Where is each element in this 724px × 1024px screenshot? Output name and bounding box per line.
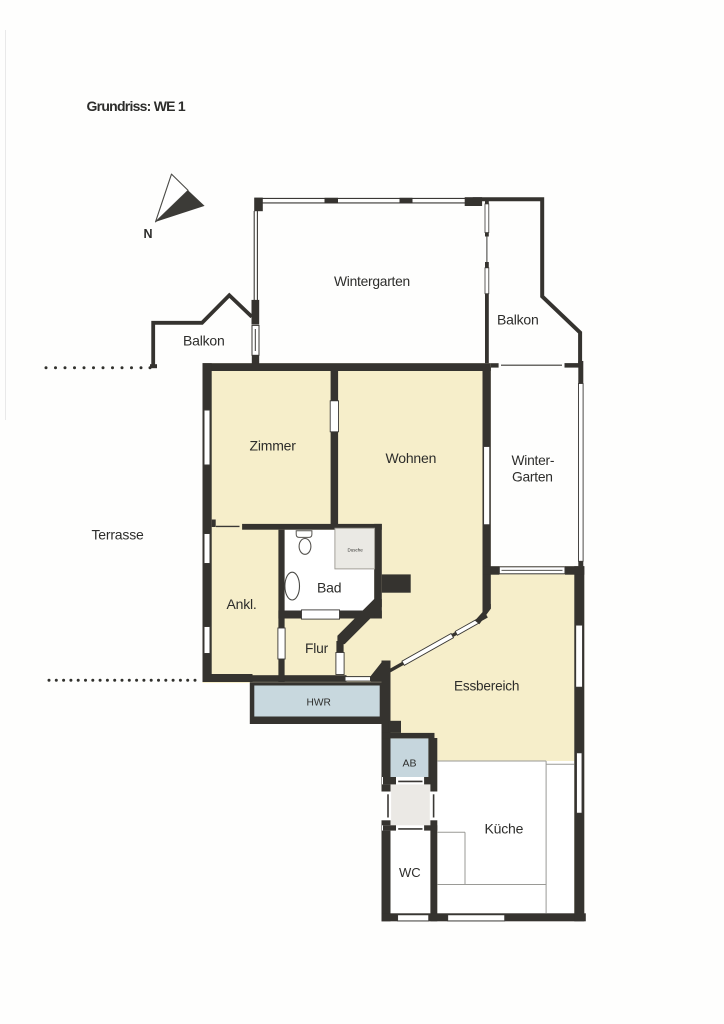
svg-text:Bad: Bad bbox=[317, 580, 341, 596]
svg-text:Grundriss: WE 1: Grundriss: WE 1 bbox=[87, 98, 186, 114]
svg-text:Flur: Flur bbox=[305, 641, 329, 656]
svg-text:Garten: Garten bbox=[512, 469, 553, 484]
svg-text:Ankl.: Ankl. bbox=[227, 596, 257, 612]
svg-text:Küche: Küche bbox=[485, 821, 524, 837]
svg-text:AB: AB bbox=[403, 757, 417, 769]
svg-text:Wintergarten: Wintergarten bbox=[334, 274, 410, 289]
svg-text:N: N bbox=[144, 227, 153, 241]
svg-text:Zimmer: Zimmer bbox=[250, 438, 297, 454]
svg-text:Balkon: Balkon bbox=[497, 312, 539, 328]
svg-text:Terrasse: Terrasse bbox=[92, 527, 144, 543]
svg-text:HWR: HWR bbox=[307, 698, 331, 709]
svg-text:WC: WC bbox=[399, 865, 421, 880]
svg-text:Wohnen: Wohnen bbox=[386, 450, 437, 466]
svg-text:Winter-: Winter- bbox=[512, 453, 555, 468]
svg-text:Essbereich: Essbereich bbox=[454, 679, 519, 694]
svg-text:Balkon: Balkon bbox=[183, 333, 225, 349]
svg-text:Dusche: Dusche bbox=[348, 548, 364, 553]
